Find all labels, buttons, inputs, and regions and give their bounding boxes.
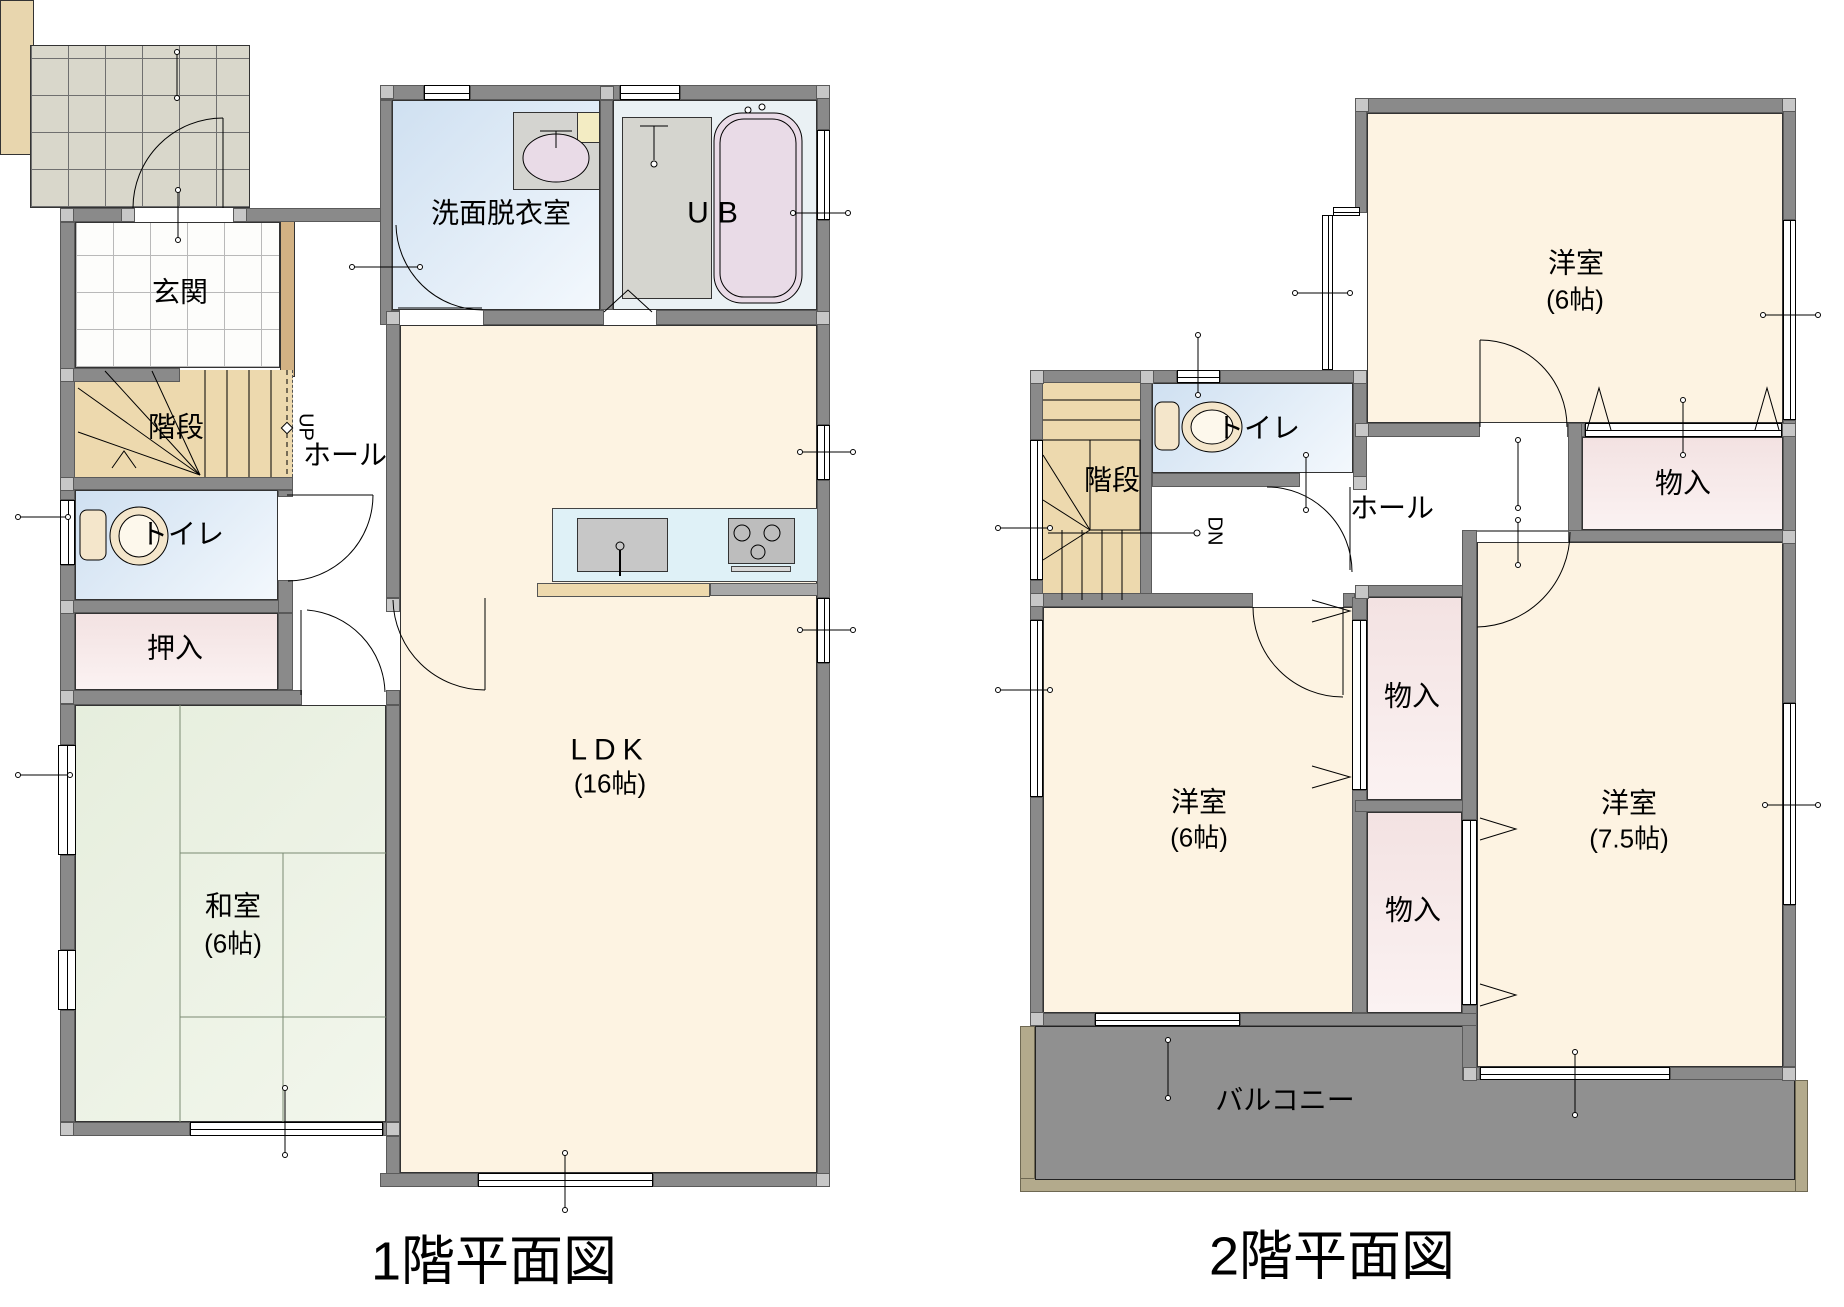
folding-door-ub [604,290,652,312]
plan-linework [0,0,1844,1307]
room-label-yoshitsu-75: 洋室 [1601,788,1657,817]
room-label-yoshitsu-75-size: (7.5帖) [1589,825,1668,852]
room-label-yoshitsu-north-size: (6帖) [1546,286,1604,313]
room-label-senmen: 洗面脱衣室 [431,198,571,227]
room-label-hall-2f: ホール [1350,493,1434,522]
room-label-yoshitsu-southwest-size: (6帖) [1170,824,1228,851]
room-label-genkan: 玄関 [152,277,208,306]
room-label-yoshitsu-north: 洋室 [1548,248,1604,277]
room-label-hall-1f: ホール [303,440,387,469]
door-arc-washitsu [301,610,385,695]
room-label-kaidan-2f: 階段 [1084,465,1140,494]
room-label-balcony: バルコニー [1215,1085,1354,1114]
room-label-washitsu-size: (6帖) [204,930,262,957]
room-label-oshiire: 押入 [147,633,203,662]
room-label-monoire-middle: 物入 [1384,681,1440,710]
floor1-title: 1階平面図 [371,1234,617,1291]
door-arc-ldk [393,598,485,690]
door-arc-yoshitsu-southwest [1253,607,1343,697]
door-arc-yoshitsu-north [1480,340,1567,427]
room-label-up: UP [295,413,316,441]
room-label-washitsu: 和室 [205,891,261,920]
floor2-title: 2階平面図 [1209,1229,1455,1286]
room-label-kaidan-1f: 階段 [148,412,204,441]
room-label-monoire-north: 物入 [1655,468,1711,497]
door-arc-toilet-1f [287,495,373,581]
room-label-ldk: LDK [570,734,649,766]
kitchen-faucet-icon [616,525,780,576]
room-label-ldk-size: (16帖) [574,770,646,797]
room-label-monoire-south: 物入 [1385,895,1441,924]
room-label-toilet-1f: トイレ [140,519,224,548]
floor-plan-canvas: 玄関 洗面脱衣室 UB 階段 UP ホール トイレ 押入 和室 (6帖) LDK… [0,0,1844,1307]
door-arc-yoshitsu-75 [1477,531,1570,627]
room-label-ub: UB [687,197,747,229]
room-label-dn: DN [1204,517,1225,546]
room-label-toilet-2f: トイレ [1216,413,1300,442]
washbasin-icon [523,131,589,182]
room-label-yoshitsu-southwest: 洋室 [1171,787,1227,816]
door-arc-toilet-2f [1267,487,1352,572]
